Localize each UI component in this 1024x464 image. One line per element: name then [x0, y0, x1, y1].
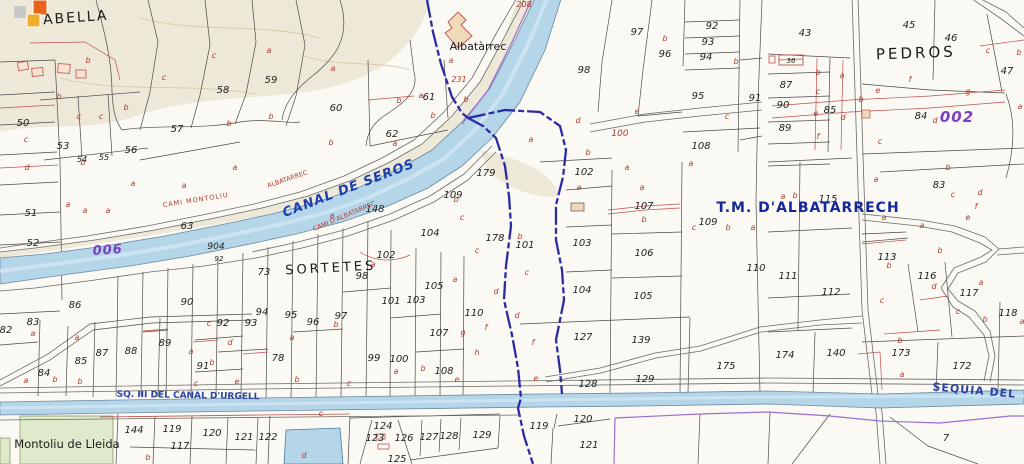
subparcel-letter: b [641, 215, 646, 224]
parcel-number-label: 128 [439, 431, 458, 442]
parcel-number-label: 175 [716, 361, 735, 372]
subparcel-letter: b [937, 246, 942, 255]
parcel-number-label: 110 [464, 308, 483, 319]
subparcel-letter: a [577, 183, 582, 192]
subparcel-letter: b [858, 95, 863, 104]
subparcel-letter: e [876, 86, 881, 95]
subparcel-letter: b [420, 364, 425, 373]
place-label: Albatàrrec [450, 40, 507, 53]
parcel-number-label: 7 [943, 433, 950, 444]
subparcel-letter: b [1016, 48, 1021, 57]
subparcel-letter: g [460, 328, 465, 337]
subparcel-letter: b [52, 375, 57, 384]
parcel-number-label: 117 [959, 288, 979, 299]
subparcel-letter: c [77, 112, 82, 121]
small-building [862, 110, 870, 118]
subparcel-letter: a [529, 135, 534, 144]
parcel-number-label: 101 [515, 240, 534, 251]
parcel-number-label: 108 [434, 366, 453, 377]
subparcel-letter: a [874, 175, 879, 184]
parcel-number-label: 85 [75, 356, 88, 367]
subparcel-letter: e [814, 109, 819, 118]
parcel-number-label: 91 [749, 93, 762, 104]
subparcel-letter: c [525, 268, 530, 277]
subparcel-letter: c [212, 51, 217, 60]
subparcel-letter: a [394, 367, 399, 376]
subparcel-letter: a [920, 221, 925, 230]
parcel-number-label: 110 [746, 263, 765, 274]
parcel-number-label: 208 [516, 0, 531, 9]
subparcel-letter: a [453, 275, 458, 284]
parcel-number-label: 56 [125, 145, 138, 156]
parcel-number-label: 92 [215, 255, 224, 263]
parcel-number-label: 92 [217, 318, 230, 329]
parcel-number-label: 121 [234, 432, 253, 443]
subparcel-letter: b [430, 111, 435, 120]
subparcel-letter: b [585, 148, 590, 157]
parcel-number-label: 99 [368, 353, 381, 364]
subparcel-letter: c [99, 112, 104, 121]
parcel-number-label: 120 [202, 428, 221, 439]
parcel-number-label: 127 [573, 332, 593, 343]
subparcel-letter: c [725, 112, 730, 121]
subparcel-letter: c [880, 296, 885, 305]
parcel-number-label: 97 [335, 311, 348, 322]
subparcel-letter: a [840, 71, 845, 80]
place-label: 002 [940, 108, 974, 126]
subparcel-letter: a [189, 347, 194, 356]
parcel-number-label: 102 [574, 167, 593, 178]
subparcel-letter: a [625, 163, 630, 172]
subparcel-letter: b [725, 223, 730, 232]
parcel-number-label: 109 [443, 190, 462, 201]
parcel-number-label: 179 [476, 168, 495, 179]
parcel-number-label: 53 [57, 141, 70, 152]
parcel-number-label: 87 [780, 80, 793, 91]
parcel-number-label: 105 [424, 281, 443, 292]
parcel-number-label: 101 [381, 296, 400, 307]
cadastral-map-viewport[interactable]: bcbccbcbcaabbabbbaabedcabbbacedfbfegcdac… [0, 0, 1024, 464]
parcel-number-label: 51 [25, 208, 38, 219]
parcel-number-label: 173 [891, 348, 910, 359]
parcel-number-label: 78 [272, 353, 285, 364]
place-label: Montoliu de Lleida [14, 437, 119, 451]
subparcel-letter: a [233, 163, 238, 172]
parcel-number-label: 178 [485, 233, 504, 244]
subparcel-letter: b [226, 119, 231, 128]
parcel-number-label: 36 [787, 57, 796, 65]
subparcel-letter: c [207, 319, 212, 328]
parcel-number-label: 73 [258, 267, 271, 278]
parcel-number-label: 174 [775, 350, 794, 361]
subparcel-letter: e [455, 375, 460, 384]
parcel-number-label: 83 [933, 180, 946, 191]
parcel-number-label: 91 [197, 361, 210, 372]
parcel-number-label: 129 [472, 430, 491, 441]
parcel-number-label: 89 [779, 123, 792, 134]
subparcel-letter: a [900, 370, 905, 379]
subparcel-letter: b [294, 375, 299, 384]
parcel-number-label: 85 [824, 105, 837, 116]
subparcel-letter: c [460, 213, 465, 222]
subparcel-letter: c [816, 87, 821, 96]
parcel-number-label: 144 [124, 425, 143, 436]
subparcel-letter: e [235, 377, 240, 386]
subparcel-letter: a [267, 46, 272, 55]
parcel-number-label: 96 [307, 317, 320, 328]
subparcel-letter: a [31, 329, 36, 338]
subparcel-letter: a [66, 200, 71, 209]
parcel-number-label: 59 [265, 75, 278, 86]
parcel-number-label: 94 [700, 52, 713, 63]
parcel-number-label: 57 [171, 124, 184, 135]
subparcel-letter: c [878, 137, 883, 146]
parcel-number-label: 231 [451, 75, 466, 84]
subparcel-letter: b [815, 68, 820, 77]
subparcel-letter: b [792, 191, 797, 200]
parcel-number-label: 82 [0, 325, 12, 336]
subparcel-letter: a [1018, 102, 1023, 111]
parcel-number-label: 123 [365, 433, 384, 444]
subparcel-letter: c [956, 307, 961, 316]
parcel-number-label: 95 [285, 310, 298, 321]
subparcel-letter: b [945, 163, 950, 172]
parcel-number-label: 102 [376, 250, 395, 261]
parcel-number-label: 50 [17, 118, 30, 129]
parcel-number-label: 118 [998, 308, 1017, 319]
parcel-number-label: 116 [917, 271, 936, 282]
parcel-number-label: 93 [245, 318, 258, 329]
parcel-number-label: 100 [389, 354, 408, 365]
parcel-number-label: 89 [159, 338, 172, 349]
parcel-number-label: 54 [77, 155, 87, 164]
subparcel-letter: c [194, 379, 199, 388]
parcel-number-label: 52 [27, 238, 40, 249]
subparcel-letter: a [331, 64, 336, 73]
parcel-number-label: 107 [429, 328, 449, 339]
parcel-number-label: 107 [634, 201, 654, 212]
subparcel-letter: b [733, 57, 738, 66]
parcel-number-label: 55 [99, 153, 109, 162]
parcel-number-label: 129 [635, 374, 654, 385]
parcel-number-label: 119 [162, 424, 181, 435]
subparcel-letter: c [986, 46, 991, 55]
parcel-number-label: 60 [330, 103, 343, 114]
subparcel-letter: c [319, 409, 324, 418]
parcel-number-label: 90 [777, 100, 790, 111]
subparcel-letter: b [396, 96, 401, 105]
subparcel-letter: a [689, 159, 694, 168]
place-label: PEDROS [876, 43, 956, 64]
parcel-number-label: 120 [573, 414, 592, 425]
subparcel-letter: a [75, 333, 80, 342]
parcel-number-label: 904 [207, 242, 224, 252]
subparcel-letter: a [24, 376, 29, 385]
parcel-number-label: 103 [406, 295, 425, 306]
parcel-number-label: 109 [698, 217, 717, 228]
parcel-number-label: 104 [420, 228, 439, 239]
parcel-number-label: 93 [702, 37, 715, 48]
farm-building [571, 203, 584, 211]
parcel-number-label: 172 [952, 361, 971, 372]
parcel-number-label: 105 [633, 291, 652, 302]
subparcel-letter: c [475, 246, 480, 255]
parcel-number-label: 98 [578, 65, 591, 76]
parcel-number-label: 86 [69, 300, 82, 311]
parcel-number-label: 128 [578, 379, 597, 390]
subparcel-letter: a [1020, 317, 1024, 326]
subparcel-letter: b [897, 336, 902, 345]
subparcel-letter: b [463, 95, 468, 104]
parcel-number-label: 119 [529, 421, 548, 432]
subparcel-letter: b [982, 315, 987, 324]
parcel-number-label: 106 [634, 248, 653, 259]
parcel-number-label: 88 [125, 346, 138, 357]
subparcel-letter: c [951, 190, 956, 199]
subparcel-letter: b [56, 92, 61, 101]
parcel-number-label: 126 [394, 433, 413, 444]
subparcel-letter: b [209, 358, 214, 367]
subparcel-letter: g [965, 87, 970, 96]
subparcel-letter: h [474, 348, 479, 357]
parcel-number-label: 104 [572, 285, 591, 296]
subparcel-letter: a [83, 206, 88, 215]
parcel-number-label: 63 [181, 221, 194, 232]
pond [284, 428, 343, 464]
subparcel-letter: e [966, 213, 971, 222]
subparcel-letter: e [534, 374, 539, 383]
parcel-number-label: 112 [821, 287, 840, 298]
parcel-number-label: 127 [419, 432, 439, 443]
parcel-number-label: 121 [579, 440, 598, 451]
parcel-number-label: 83 [27, 317, 40, 328]
amber-swatch [27, 14, 40, 27]
subparcel-letter: a [979, 278, 984, 287]
subparcel-letter: c [347, 379, 352, 388]
parcel-number-label: 45 [903, 20, 916, 31]
subparcel-letter: a [449, 56, 454, 65]
grey-swatch [14, 6, 26, 18]
parcel-number-label: 124 [373, 421, 392, 432]
parcel-number-label: 43 [799, 28, 812, 39]
parcel-number-label: 103 [572, 238, 591, 249]
place-label: T.M. D'ALBATARRECH [716, 200, 899, 216]
parcel-number-label: 47 [1001, 66, 1014, 77]
subparcel-letter: b [268, 112, 273, 121]
subparcel-letter: b [662, 34, 667, 43]
parcel-number-label: 90 [181, 297, 194, 308]
parcel-number-label: 87 [96, 348, 109, 359]
subparcel-letter: b [85, 56, 90, 65]
place-label: 006 [92, 242, 123, 259]
subparcel-letter: a [751, 223, 756, 232]
parcel-number-label: 95 [692, 91, 705, 102]
parcel-number-label: 94 [256, 307, 269, 318]
parcel-number-label: 125 [387, 454, 406, 464]
parcel-number-label: 122 [258, 432, 277, 443]
parcel-number-label: 100 [611, 129, 628, 139]
parcel-number-label: 117 [170, 441, 190, 452]
parcel-number-label: 96 [659, 49, 672, 60]
subparcel-letter: a [106, 206, 111, 215]
parcel-number-label: 92 [706, 21, 719, 32]
subparcel-letter: a [290, 333, 295, 342]
subparcel-letter: a [640, 183, 645, 192]
subparcel-letter: e [635, 107, 640, 116]
parcel-number-label: 139 [631, 335, 650, 346]
subparcel-letter: c [24, 135, 29, 144]
parcel-number-label: 97 [631, 27, 644, 38]
parcel-number-label: 61 [423, 92, 436, 103]
subparcel-letter: a [182, 181, 187, 190]
subparcel-letter: c [692, 223, 697, 232]
parcel-number-label: 62 [386, 129, 399, 140]
parcel-number-label: 113 [877, 252, 896, 263]
parcel-number-label: 58 [217, 85, 230, 96]
subparcel-letter: a [393, 139, 398, 148]
parcel-number-label: 140 [826, 348, 845, 359]
subparcel-letter: b [77, 377, 82, 386]
subparcel-letter: b [145, 453, 150, 462]
subparcel-letter: b [123, 103, 128, 112]
parcel-number-label: 84 [915, 111, 928, 122]
parcel-number-label: 111 [778, 271, 797, 282]
parcel-number-label: 108 [691, 141, 710, 152]
subparcel-letter: a [131, 179, 136, 188]
subparcel-letter: b [328, 138, 333, 147]
parcel-number-label: 84 [38, 368, 51, 379]
subparcel-letter: c [162, 73, 167, 82]
